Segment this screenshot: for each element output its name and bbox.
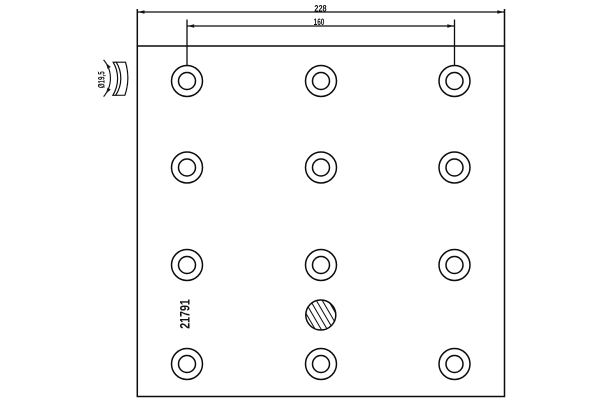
svg-text:21791: 21791 <box>178 299 193 329</box>
svg-text:Ø19,5: Ø19,5 <box>96 71 106 88</box>
svg-text:160: 160 <box>314 17 325 28</box>
svg-text:228: 228 <box>314 3 326 14</box>
